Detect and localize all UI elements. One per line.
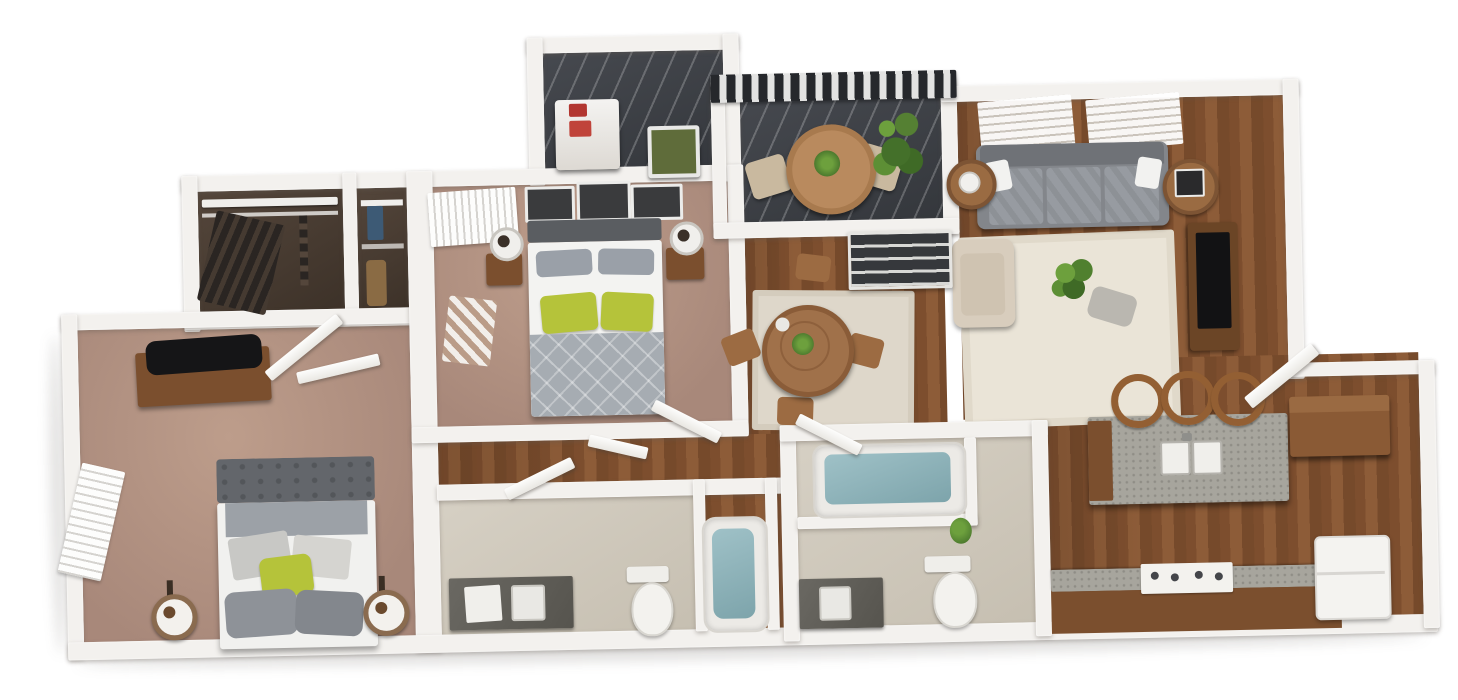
- bedroom2-tufted-headboard: [216, 456, 375, 503]
- utility-stored-item-blue: [367, 206, 384, 240]
- wall-laundry-left: [526, 37, 545, 185]
- bathroom1-sink: [511, 585, 546, 622]
- armchair-seat: [960, 253, 1005, 316]
- refrigerator: [1314, 535, 1392, 621]
- dining-chair-top: [795, 253, 832, 283]
- hanging-clothes-sparse: [299, 215, 308, 285]
- kitchen-sink-right: [1192, 440, 1223, 475]
- balcony-potted-plant: [867, 104, 925, 183]
- bedroom2-blanket-roll-2: [294, 589, 364, 636]
- wall-closet-left: [181, 176, 200, 332]
- utility-shelf-2: [362, 243, 404, 249]
- bathroom1-towel: [464, 585, 503, 624]
- master-headboard: [527, 218, 661, 243]
- sofa-pillow-right: [1134, 156, 1162, 189]
- bathroom2-sink: [819, 586, 852, 621]
- kitchen-island-side-panel: [1088, 421, 1114, 501]
- kitchen-sink-left: [1160, 441, 1191, 476]
- pantry-shelves: [848, 230, 953, 290]
- floor-plan-render: [0, 0, 1458, 700]
- master-pillow-gray-left: [535, 249, 592, 278]
- utility-stored-item-tan: [366, 260, 387, 306]
- bathroom1-tub-water: [712, 528, 756, 619]
- master-striped-bench: [442, 295, 497, 366]
- kitchen-faucet: [1182, 433, 1192, 441]
- apartment-plan: [0, 0, 1458, 700]
- master-blanket: [530, 332, 666, 417]
- laundry-wall-art: [647, 125, 700, 178]
- bathroom1-toilet-bowl: [631, 582, 674, 637]
- bathroom2-tub-water: [824, 452, 951, 505]
- kitchen-cabinet-right-top: [1289, 395, 1389, 413]
- sofa-cushion-2: [1046, 167, 1101, 224]
- master-pillow-gray-right: [598, 248, 654, 275]
- bedroom2-blanket-roll-1: [224, 588, 299, 639]
- detergent-bottle-2: [569, 120, 591, 136]
- bathroom2-toilet-tank: [924, 556, 970, 573]
- master-wall-frame-3: [631, 184, 684, 221]
- balcony-railing: [710, 70, 957, 103]
- detergent-bottle-1: [569, 104, 587, 117]
- bathroom1-toilet-tank: [627, 566, 669, 583]
- master-pillow-green-left: [540, 291, 599, 334]
- bathroom2-toilet-bowl: [933, 571, 978, 628]
- master-wall-frame-2: [576, 181, 631, 222]
- living-tv: [1196, 232, 1232, 329]
- master-wall-frame-1: [525, 186, 576, 223]
- master-pillow-green-right: [600, 291, 654, 331]
- bedroom2-blanket-top: [225, 500, 368, 537]
- side-table-lamp-right: [1174, 169, 1205, 198]
